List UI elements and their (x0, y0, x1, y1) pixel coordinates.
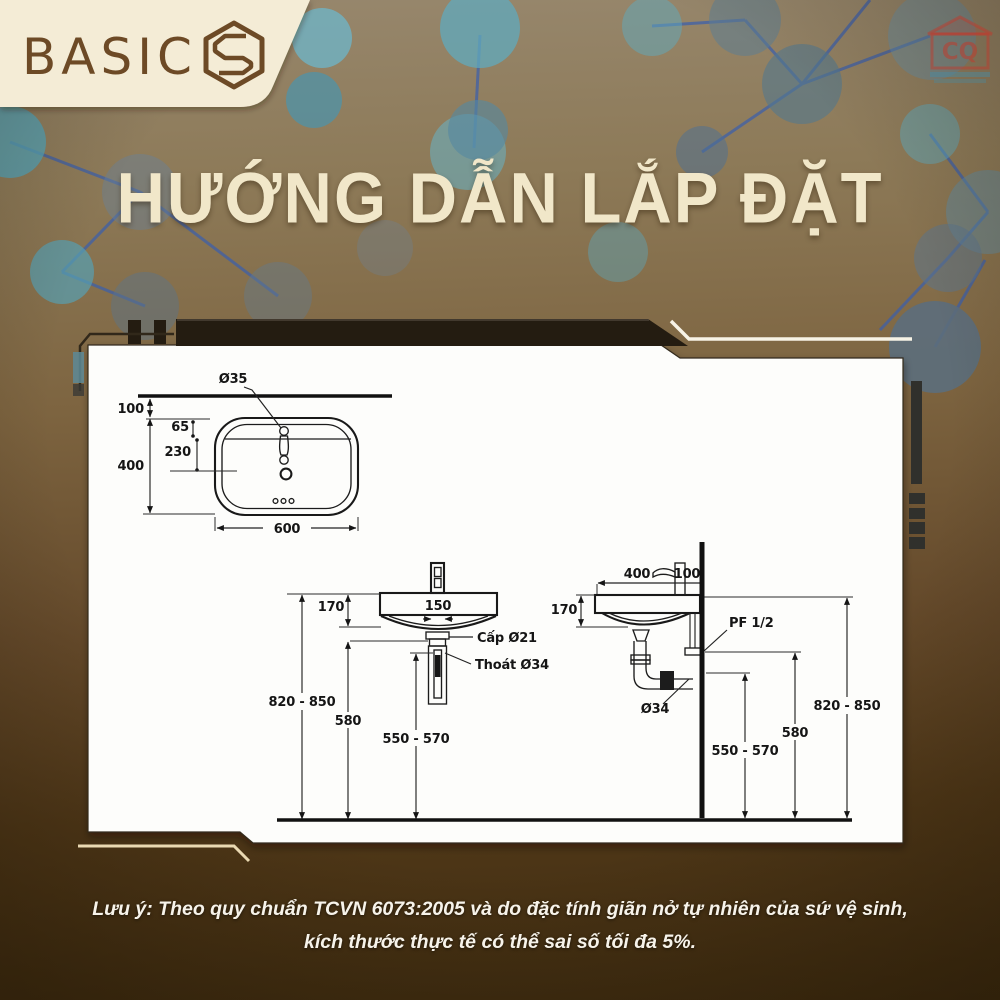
dim-hole-dia: Ø35 (219, 372, 248, 387)
dim-drain-span: 150 (425, 599, 452, 614)
dim-drain-offset: 230 (164, 445, 191, 460)
label-wall-fitting: PF 1/2 (729, 616, 774, 631)
dim-thickness: 170 (318, 600, 345, 615)
dim-supply-height: 580 (782, 726, 809, 741)
dim-depth: 400 (624, 567, 651, 582)
dim-wall-offset: 100 (117, 402, 144, 417)
dim-rim-height: 820 - 850 (814, 699, 881, 714)
dim-thickness: 170 (551, 603, 578, 618)
dim-drain-height: 550 - 570 (712, 744, 779, 759)
dim-width: 600 (274, 522, 301, 537)
footnote-line-2: kích thước thực tế có thể sai số tối đa … (70, 926, 930, 959)
dim-drain-height: 550 - 570 (383, 732, 450, 747)
footnote-line-1: Lưu ý: Theo quy chuẩn TCVN 6073:2005 và … (70, 893, 930, 926)
installation-poster: BASIC CQ HƯỚNG DẪN LẮP ĐẶT (0, 0, 1000, 1000)
dim-supply-height: 580 (335, 714, 362, 729)
label-supply: Cấp Ø21 (477, 631, 537, 646)
label-drain: Thoát Ø34 (475, 658, 549, 673)
dim-rim-height: 820 - 850 (269, 695, 336, 710)
drawing-panel: Ø35 100 400 65 230 600 150 (0, 0, 1000, 1000)
dim-faucet-gap: 100 (674, 567, 701, 582)
label-drain-dia: Ø34 (641, 702, 670, 717)
footnote: Lưu ý: Theo quy chuẩn TCVN 6073:2005 và … (70, 893, 930, 959)
dim-depth: 400 (117, 459, 144, 474)
dim-hole-offset: 65 (171, 420, 189, 435)
